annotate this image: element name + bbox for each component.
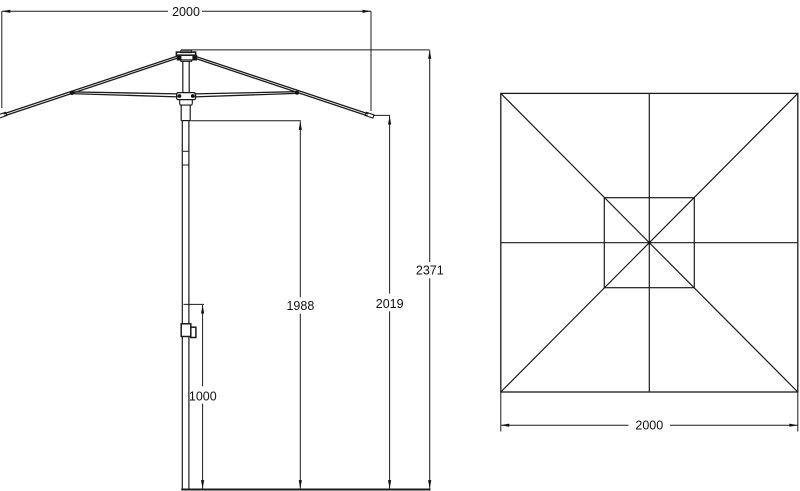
svg-text:2000: 2000 (635, 419, 663, 433)
svg-text:2000: 2000 (172, 5, 200, 19)
svg-text:1988: 1988 (286, 299, 314, 313)
svg-text:2371: 2371 (416, 264, 444, 278)
svg-text:2019: 2019 (376, 297, 404, 311)
svg-text:1000: 1000 (189, 390, 217, 404)
